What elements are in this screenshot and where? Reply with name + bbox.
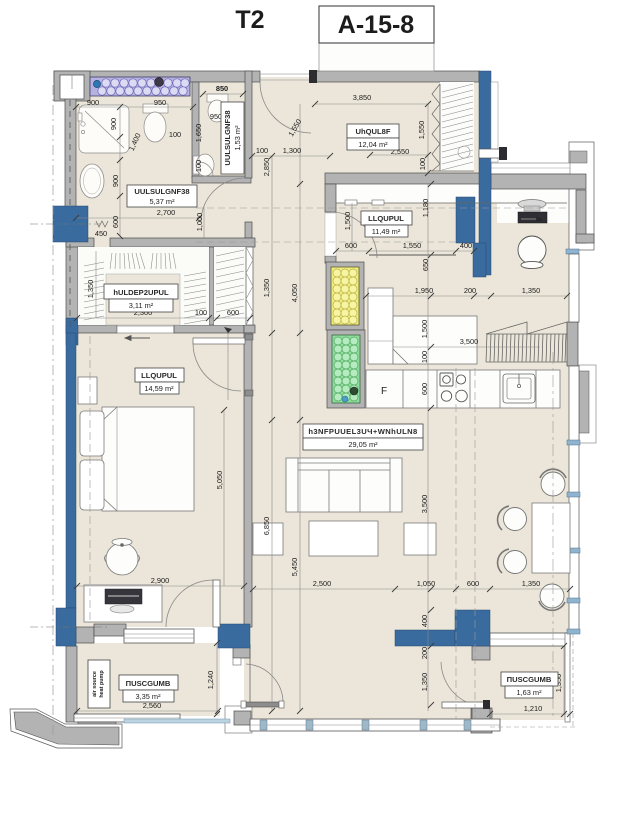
svg-text:1,500: 1,500 [420,320,429,339]
svg-text:3,500: 3,500 [420,495,429,514]
svg-text:ПUSCGUMB: ПUSCGUMB [507,675,552,684]
svg-text:1,050: 1,050 [417,579,436,588]
svg-text:1,300: 1,300 [283,146,302,155]
svg-text:2,850: 2,850 [262,158,271,177]
svg-text:600: 600 [345,241,357,250]
svg-text:3,35 m²: 3,35 m² [135,692,161,701]
svg-text:1,650: 1,650 [194,124,203,143]
svg-text:1,000: 1,000 [195,213,204,232]
svg-text:400: 400 [420,615,429,627]
svg-text:2,900: 2,900 [151,576,170,585]
svg-text:200: 200 [464,286,476,295]
svg-text:F: F [381,386,387,397]
svg-text:100: 100 [420,351,429,363]
svg-text:200: 200 [420,647,429,659]
svg-text:1,350: 1,350 [522,286,541,295]
svg-text:1,350: 1,350 [420,673,429,692]
svg-text:hULDEP2UPUL: hULDEP2UPUL [113,288,169,297]
svg-text:LLQUPUL: LLQUPUL [368,214,404,223]
svg-text:600: 600 [227,308,239,317]
svg-text:1,210: 1,210 [524,704,543,713]
svg-text:450: 450 [95,229,107,238]
svg-text:ПUSCGUMB: ПUSCGUMB [126,679,171,688]
svg-text:6,850: 6,850 [262,517,271,536]
svg-text:12,04 m²: 12,04 m² [358,140,388,149]
svg-text:600: 600 [111,216,120,228]
svg-text:h3NFPUUEL3UЧ+WNhULN8: h3NFPUUEL3UЧ+WNhULN8 [308,427,417,436]
svg-text:1,950: 1,950 [415,286,434,295]
svg-text:3,850: 3,850 [353,93,372,102]
svg-text:LLQUPUL: LLQUPUL [141,371,177,380]
svg-text:1,350: 1,350 [262,279,271,298]
svg-text:14,59 m²: 14,59 m² [144,384,174,393]
svg-text:1,550: 1,550 [403,241,422,250]
svg-text:29,05 m²: 29,05 m² [348,440,378,449]
svg-text:1,63 m²: 1,63 m² [516,688,542,697]
svg-text:T2: T2 [235,6,264,34]
svg-text:1,350: 1,350 [522,579,541,588]
svg-text:UhQUL8F: UhQUL8F [355,127,390,136]
svg-text:1,180: 1,180 [421,199,430,218]
svg-text:100: 100 [194,160,203,172]
svg-text:600: 600 [420,383,429,395]
svg-text:UULSULGNF38: UULSULGNF38 [134,187,189,196]
svg-text:5,37 m²: 5,37 m² [149,197,175,206]
svg-text:850: 850 [216,84,228,93]
svg-text:air source: air source [92,671,98,697]
svg-text:100: 100 [418,158,427,170]
svg-text:650: 650 [421,259,430,271]
svg-text:1,350: 1,350 [86,280,95,299]
svg-text:900: 900 [111,175,120,187]
svg-text:11,49 m²: 11,49 m² [372,227,401,236]
svg-text:5,050: 5,050 [215,471,224,490]
svg-text:1,550: 1,550 [417,121,426,140]
svg-text:900: 900 [109,118,118,130]
svg-text:3,11 m²: 3,11 m² [129,301,154,310]
svg-text:1,500: 1,500 [343,212,352,231]
svg-text:950: 950 [210,112,222,121]
svg-text:4,050: 4,050 [290,284,299,303]
svg-text:A-15-8: A-15-8 [338,11,415,39]
svg-text:5,450: 5,450 [290,558,299,577]
svg-text:600: 600 [467,579,479,588]
svg-text:950: 950 [154,98,166,107]
svg-text:UULSULGNF38: UULSULGNF38 [223,110,232,165]
svg-text:100: 100 [256,146,268,155]
svg-text:2,500: 2,500 [313,579,332,588]
svg-text:1,53 m²: 1,53 m² [233,125,242,151]
svg-text:100: 100 [195,308,207,317]
svg-text:heat pump: heat pump [99,670,105,698]
svg-text:2,700: 2,700 [157,208,176,217]
svg-text:3a: 3a [536,217,542,223]
svg-text:900: 900 [87,98,99,107]
svg-text:400: 400 [460,241,472,250]
svg-text:100: 100 [169,130,181,139]
svg-text:3,500: 3,500 [460,337,479,346]
svg-text:1,240: 1,240 [206,671,215,690]
